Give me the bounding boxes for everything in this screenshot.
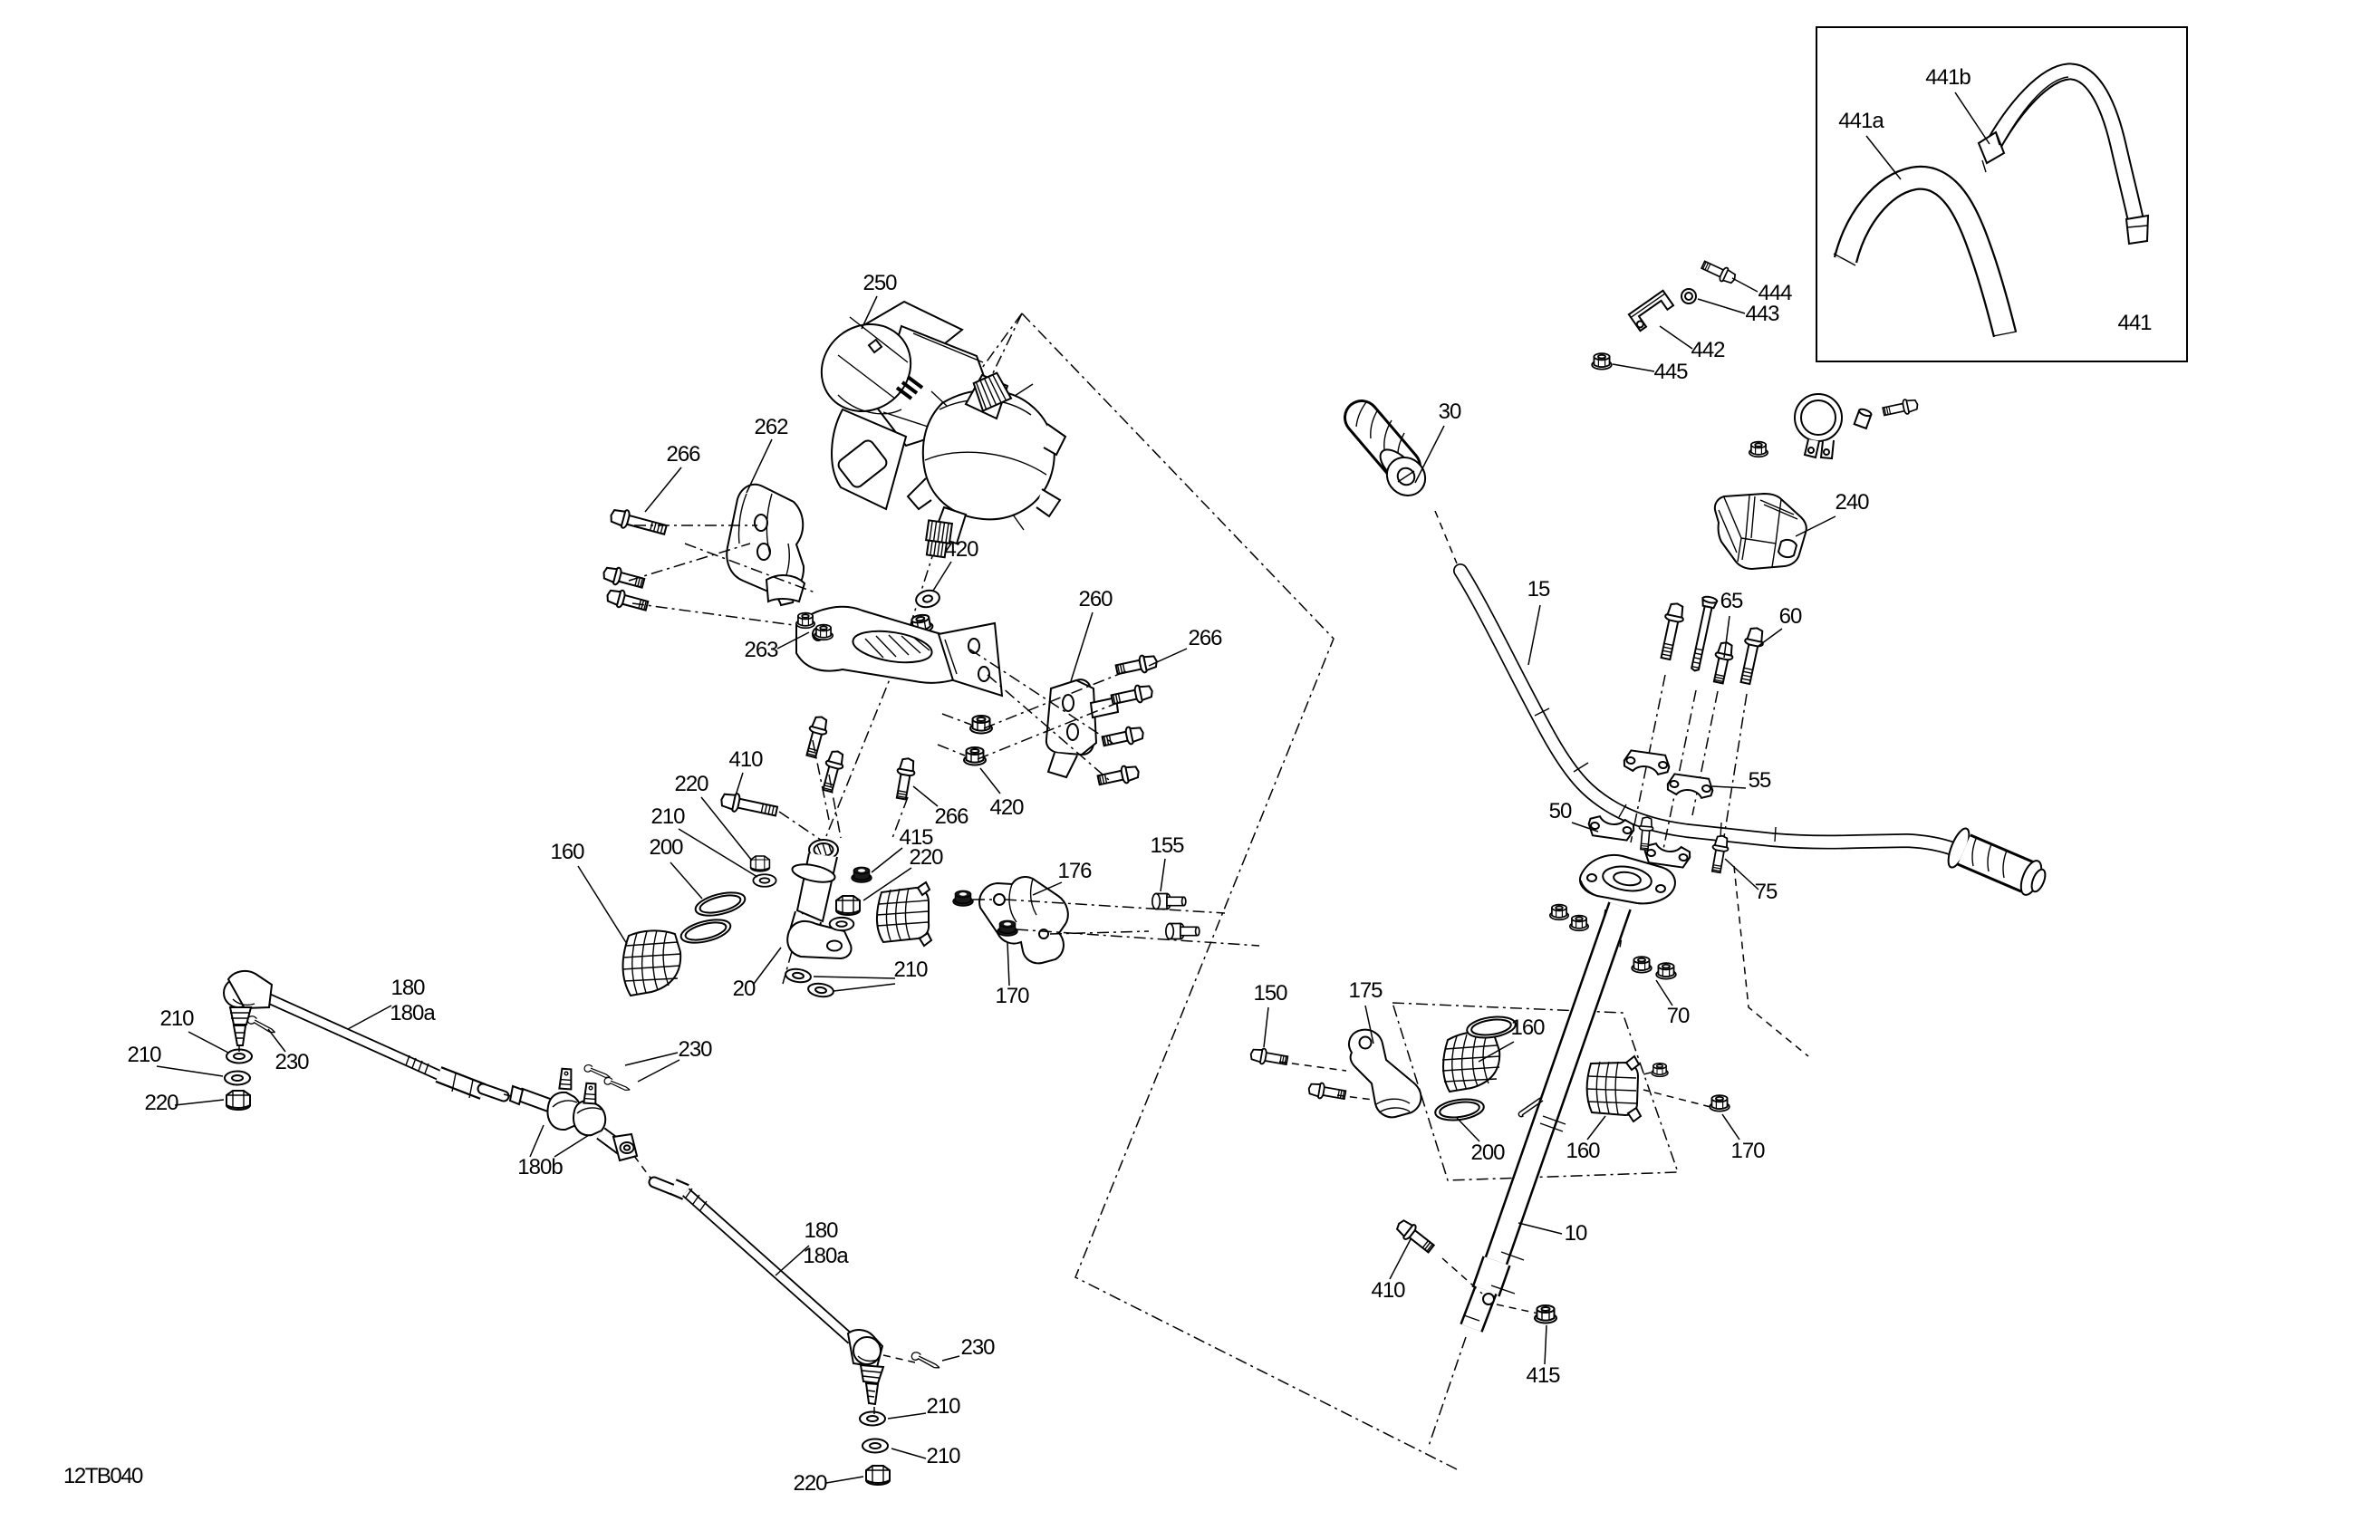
- svg-text:220: 220: [793, 1471, 827, 1496]
- svg-text:220: 220: [674, 772, 708, 796]
- svg-text:210: 210: [127, 1043, 161, 1067]
- svg-text:176: 176: [1057, 859, 1092, 883]
- svg-text:180a: 180a: [803, 1244, 849, 1268]
- svg-text:263: 263: [744, 638, 778, 662]
- svg-text:441: 441: [2117, 311, 2152, 335]
- svg-text:200: 200: [649, 835, 683, 860]
- svg-text:445: 445: [1653, 360, 1688, 384]
- svg-text:65: 65: [1720, 589, 1743, 613]
- svg-text:240: 240: [1835, 490, 1869, 515]
- svg-text:210: 210: [159, 1006, 194, 1031]
- svg-text:10: 10: [1565, 1221, 1587, 1246]
- svg-text:15: 15: [1527, 577, 1550, 602]
- svg-text:30: 30: [1439, 399, 1461, 424]
- svg-text:444: 444: [1758, 281, 1792, 305]
- svg-text:75: 75: [1755, 880, 1778, 904]
- svg-text:410: 410: [1371, 1278, 1405, 1303]
- svg-text:210: 210: [650, 804, 685, 829]
- svg-text:210: 210: [893, 958, 928, 982]
- svg-text:220: 220: [144, 1091, 178, 1115]
- svg-text:415: 415: [1526, 1363, 1560, 1388]
- svg-text:175: 175: [1348, 978, 1383, 1003]
- svg-text:70: 70: [1667, 1004, 1690, 1028]
- svg-text:266: 266: [666, 442, 700, 467]
- svg-text:230: 230: [275, 1050, 309, 1074]
- svg-text:180: 180: [804, 1218, 838, 1243]
- svg-text:50: 50: [1549, 799, 1572, 823]
- svg-text:170: 170: [995, 984, 1029, 1008]
- svg-text:210: 210: [926, 1444, 960, 1468]
- svg-text:160: 160: [1510, 1015, 1545, 1040]
- svg-text:160: 160: [1566, 1139, 1600, 1163]
- svg-text:60: 60: [1779, 604, 1802, 629]
- svg-text:443: 443: [1745, 302, 1779, 326]
- svg-text:441a: 441a: [1838, 109, 1884, 133]
- svg-text:160: 160: [550, 840, 584, 864]
- svg-text:230: 230: [678, 1037, 712, 1062]
- svg-text:230: 230: [960, 1335, 995, 1360]
- svg-text:250: 250: [862, 271, 897, 295]
- svg-text:262: 262: [754, 415, 788, 439]
- svg-text:200: 200: [1470, 1141, 1505, 1165]
- svg-text:12TB040: 12TB040: [63, 1464, 143, 1488]
- svg-text:180: 180: [390, 976, 425, 1000]
- svg-text:180b: 180b: [517, 1155, 563, 1179]
- svg-text:410: 410: [728, 747, 763, 772]
- svg-text:150: 150: [1253, 981, 1287, 1006]
- svg-text:210: 210: [926, 1394, 960, 1419]
- svg-text:420: 420: [944, 537, 978, 562]
- svg-text:170: 170: [1730, 1139, 1765, 1163]
- svg-text:55: 55: [1749, 768, 1771, 793]
- svg-text:266: 266: [934, 804, 968, 829]
- svg-text:420: 420: [989, 795, 1024, 820]
- svg-text:266: 266: [1188, 626, 1222, 650]
- svg-text:441b: 441b: [1925, 65, 1970, 90]
- svg-text:442: 442: [1691, 338, 1725, 362]
- svg-text:155: 155: [1150, 833, 1184, 858]
- svg-text:180a: 180a: [390, 1001, 436, 1025]
- svg-text:220: 220: [909, 845, 943, 870]
- svg-text:20: 20: [733, 977, 756, 1001]
- svg-text:260: 260: [1078, 587, 1113, 611]
